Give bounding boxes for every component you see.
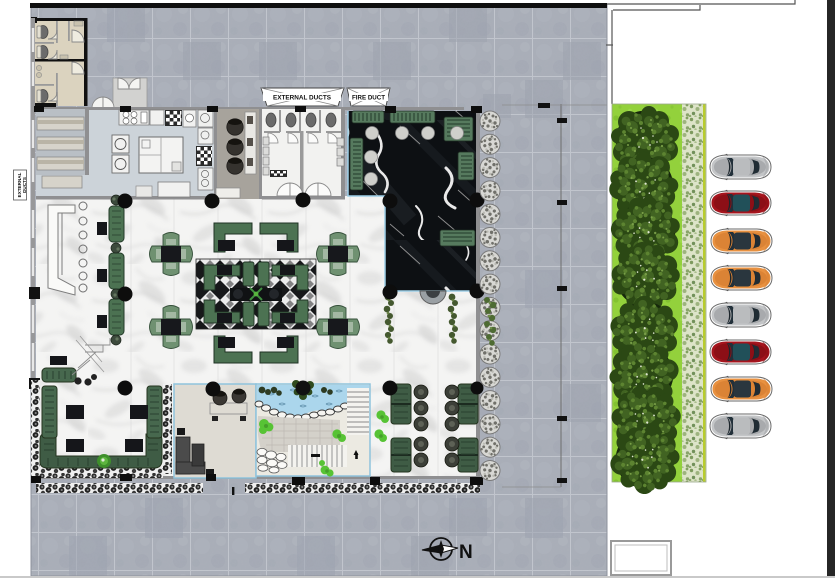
svg-text:EXTERNAL DUCTS: EXTERNAL DUCTS — [273, 95, 332, 102]
svg-text:N: N — [459, 542, 473, 563]
svg-text:DUCTS: DUCTS — [22, 177, 27, 193]
svg-text:FIRE DUCT: FIRE DUCT — [352, 95, 385, 102]
